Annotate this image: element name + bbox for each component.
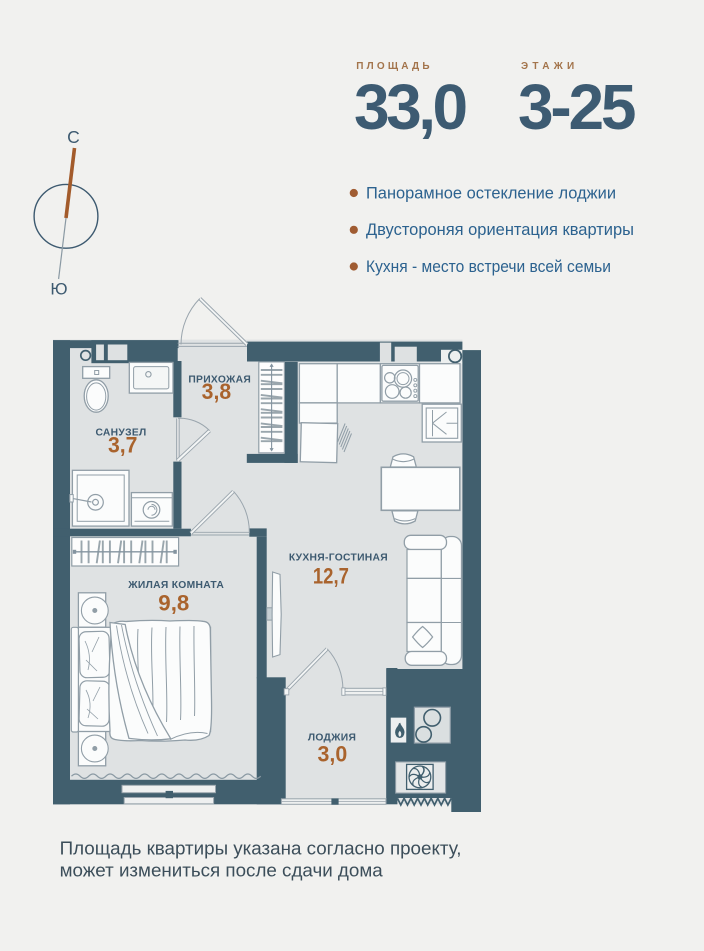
svg-text:3-25: 3-25 <box>518 71 635 143</box>
svg-text:3,7: 3,7 <box>108 433 138 458</box>
svg-text:Двустороняя ориентация квартир: Двустороняя ориентация квартиры <box>366 221 634 239</box>
svg-text:Ю: Ю <box>50 280 67 299</box>
svg-text:9,8: 9,8 <box>158 590 189 615</box>
svg-text:Площадь квартиры указана согла: Площадь квартиры указана согласно проект… <box>60 838 462 859</box>
svg-text:33,0: 33,0 <box>354 71 465 143</box>
svg-text:КУХНЯ-ГОСТИНАЯ: КУХНЯ-ГОСТИНАЯ <box>289 552 388 563</box>
svg-text:может измениться после сдачи д: может измениться после сдачи дома <box>60 859 384 880</box>
svg-text:3,8: 3,8 <box>202 379 232 404</box>
svg-text:12,7: 12,7 <box>313 564 349 589</box>
svg-text:3,0: 3,0 <box>318 742 348 767</box>
svg-text:Кухня - место встречи всей сем: Кухня - место встречи всей семьи <box>366 258 611 276</box>
svg-text:С: С <box>67 127 80 147</box>
svg-text:Панорамное остекление лоджии: Панорамное остекление лоджии <box>366 184 616 202</box>
